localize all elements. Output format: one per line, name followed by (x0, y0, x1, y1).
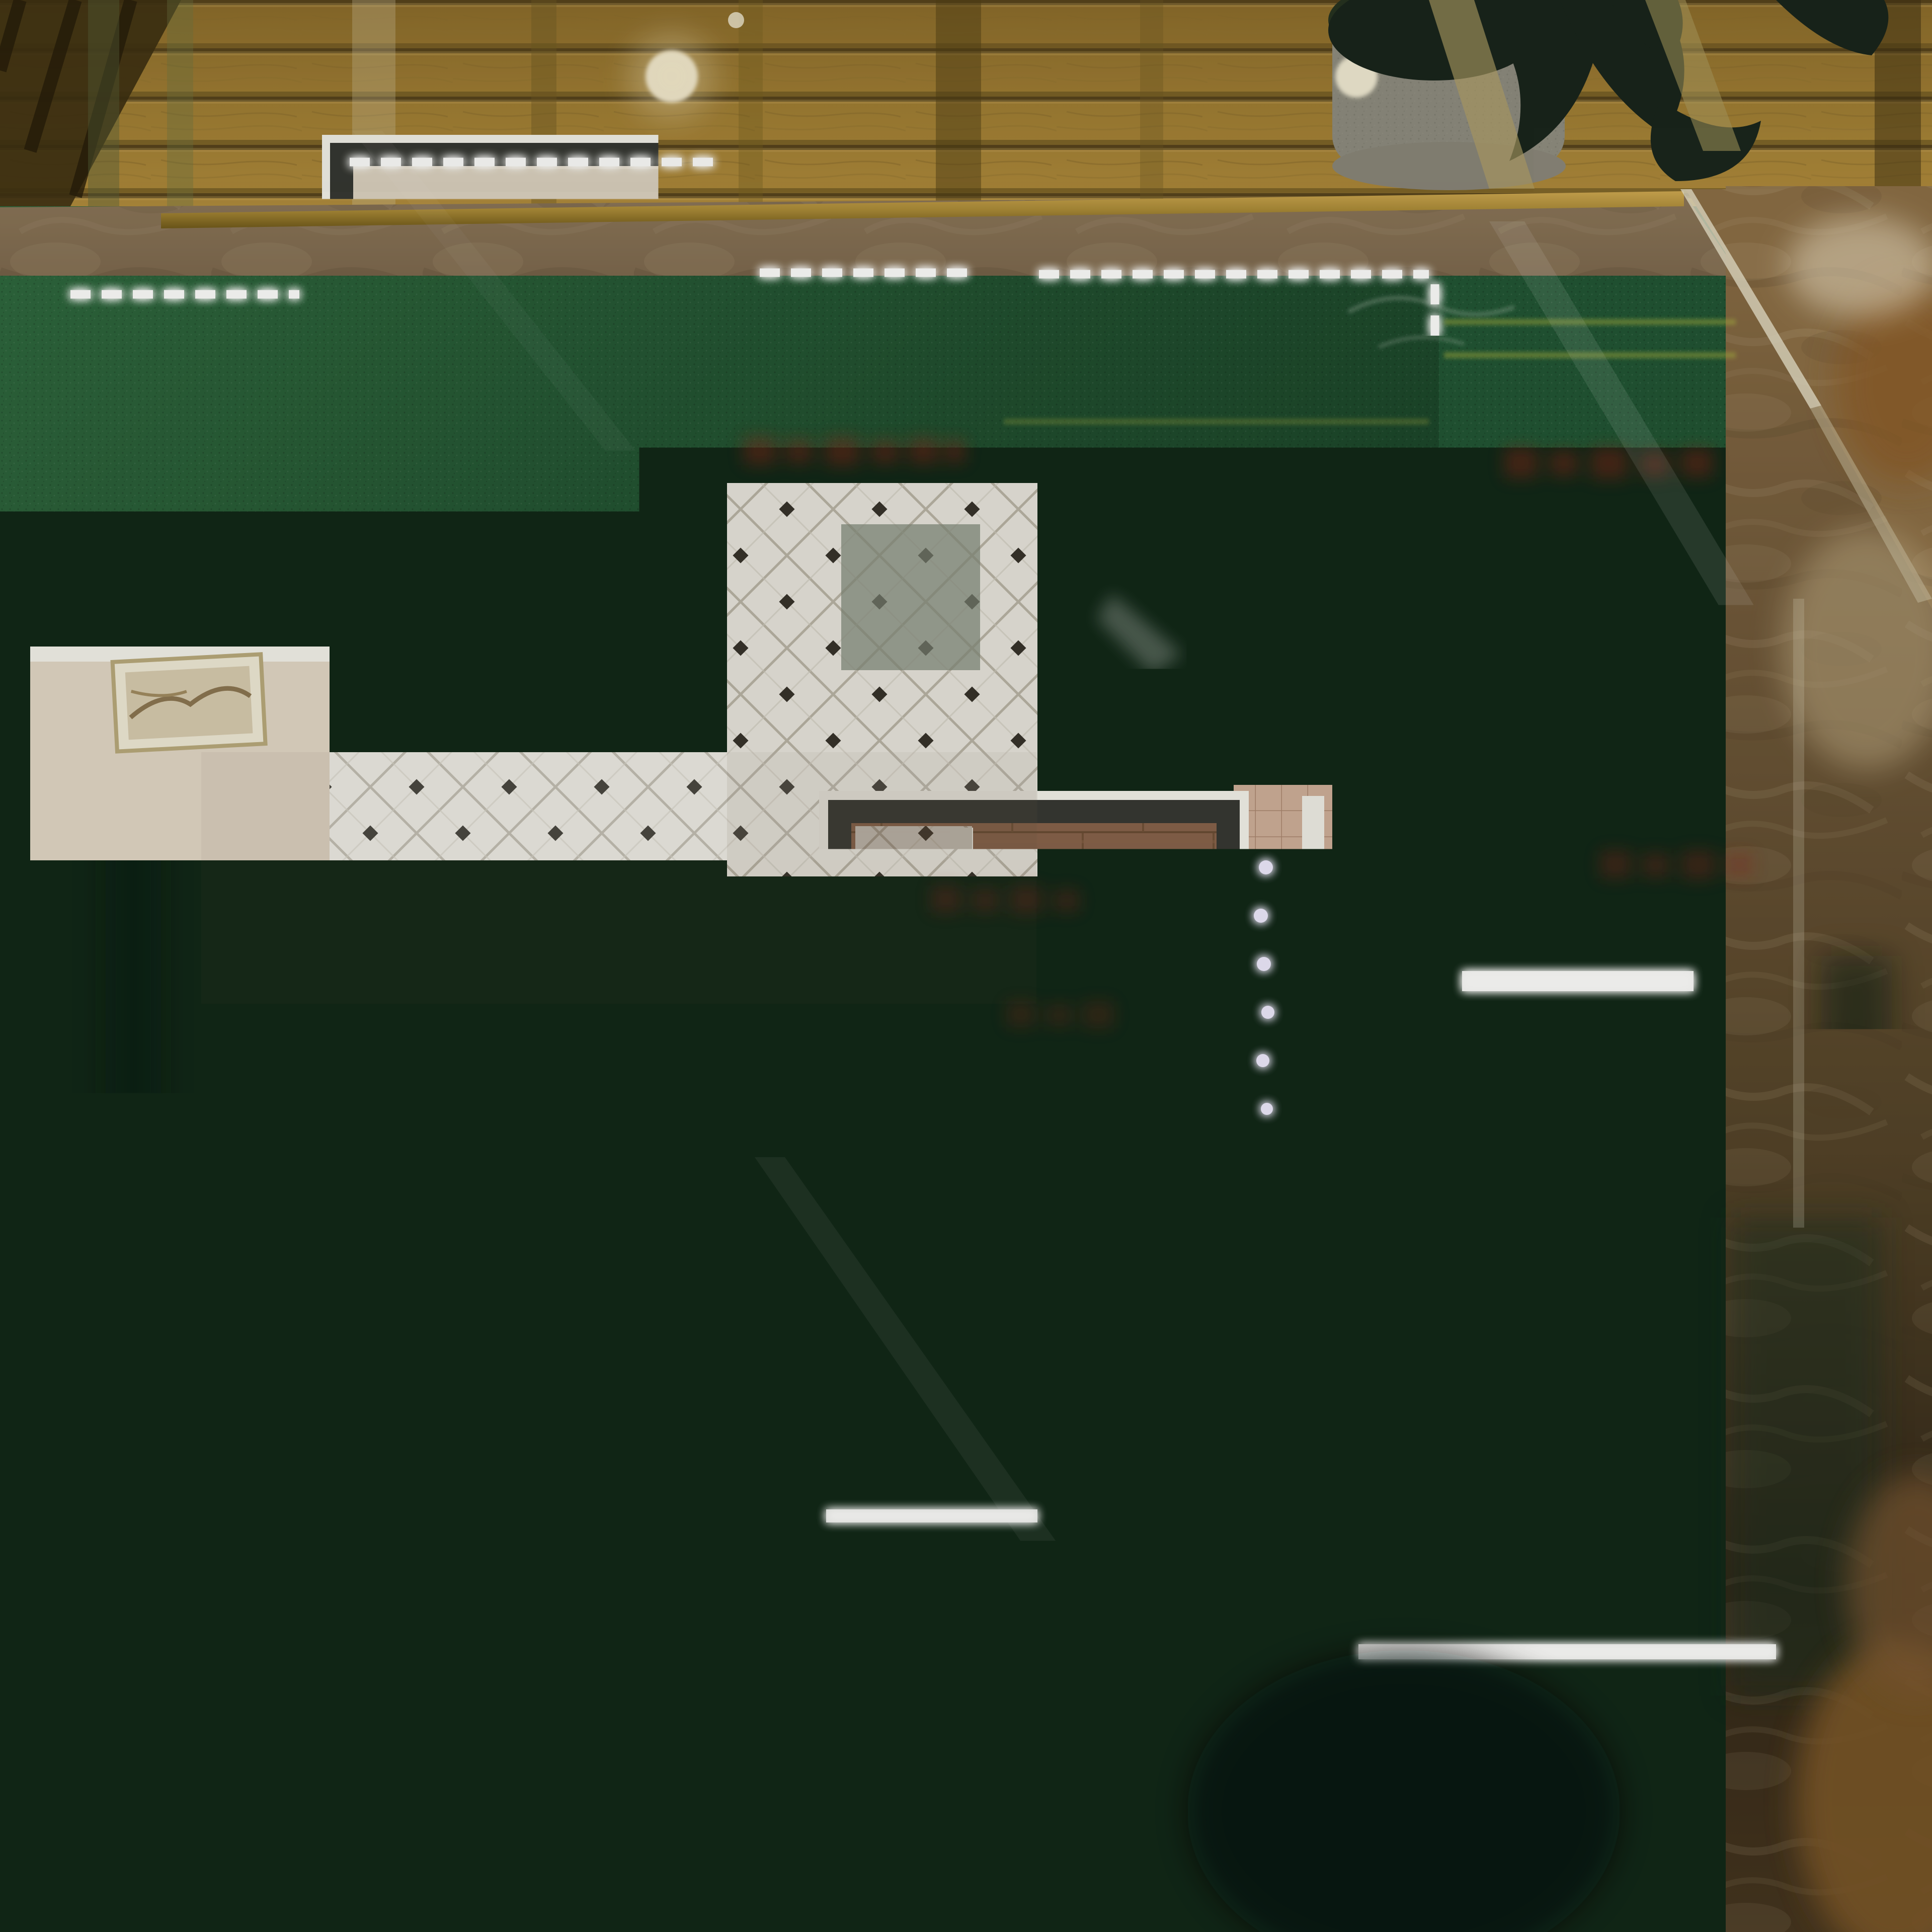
svg-text:126.49: 126.49 (1642, 1824, 1778, 1874)
